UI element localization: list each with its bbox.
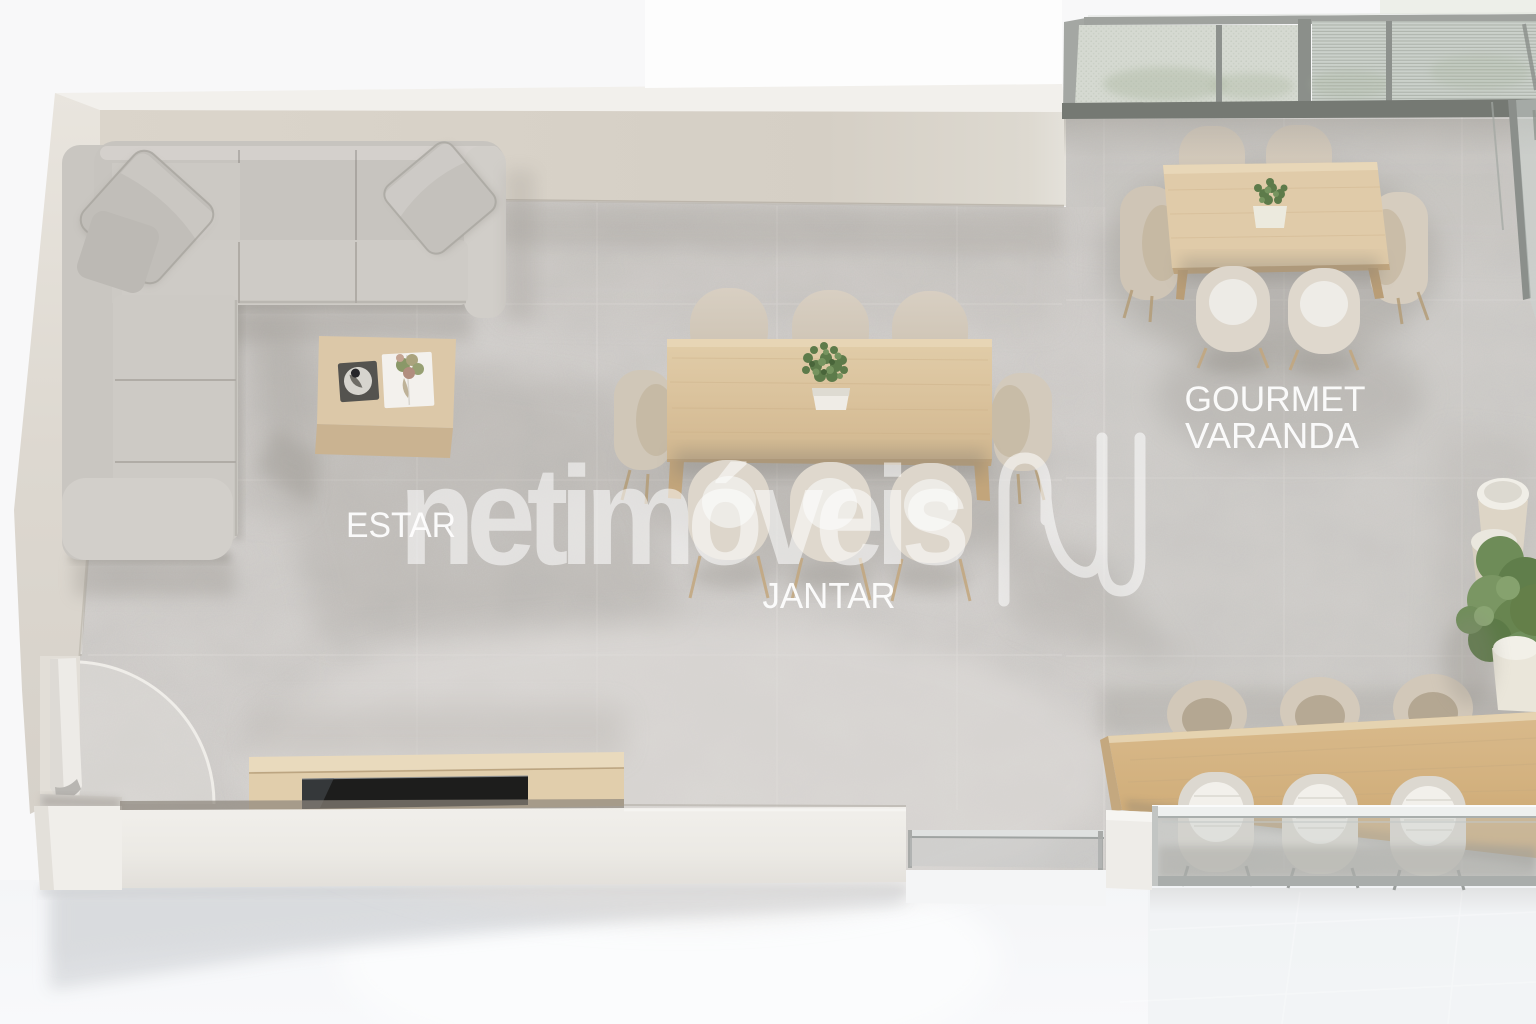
svg-text:JANTAR: JANTAR: [763, 575, 896, 616]
svg-text:ESTAR: ESTAR: [346, 506, 456, 545]
svg-text:GOURMET: GOURMET: [1185, 380, 1366, 419]
svg-text:VARANDA: VARANDA: [1185, 415, 1359, 456]
svg-text:netimóveis: netimóveis: [399, 438, 966, 594]
